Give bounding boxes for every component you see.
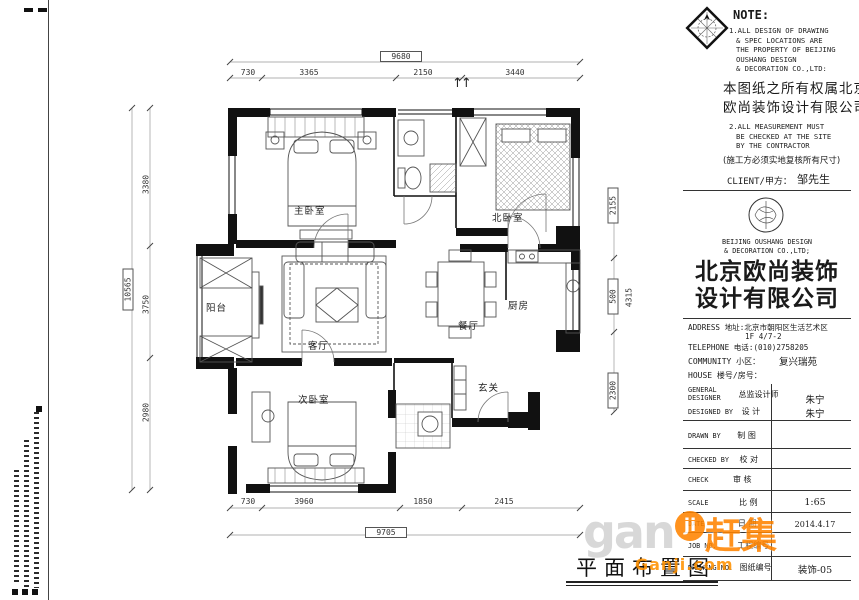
dim-bottom-total: 9705 bbox=[365, 527, 407, 538]
table-row-check: CHECK 审 核 bbox=[688, 474, 848, 485]
table-row-designed-by: DESIGNED BY 设 计 朱宁 bbox=[688, 406, 848, 417]
divider bbox=[683, 468, 851, 469]
floor-plan-sheet: 主卧室 北卧室 阳台 客厅 餐厅 厨房 玄关 次卧室 ↑↑ 9680 730 3… bbox=[0, 0, 859, 600]
dim-right-1: 2155 bbox=[608, 188, 619, 224]
dim-bottom-1: 730 bbox=[231, 497, 265, 506]
room-label-balcony: 阳台 bbox=[206, 300, 227, 314]
dim-left-3: 2980 bbox=[142, 396, 151, 430]
divider bbox=[683, 190, 851, 191]
company-name-en-2: & DECORATION CO.,LTD; bbox=[683, 247, 851, 256]
note-chinese-line-2: 欧尚装饰设计有限公司 bbox=[723, 99, 859, 118]
entry-direction-arrows: ↑↑ bbox=[452, 76, 470, 91]
note-heading: NOTE: bbox=[733, 8, 769, 22]
company-stamp-icon bbox=[747, 196, 785, 234]
divider bbox=[683, 490, 851, 491]
community-value: 复兴瑞苑 bbox=[779, 354, 817, 368]
table-row-date: DATE 日 期 2014.4.17 bbox=[688, 518, 848, 529]
divider bbox=[683, 532, 851, 533]
dim-top-3: 2150 bbox=[406, 68, 440, 77]
table-row-drawn-by: DRAWN BY 制 图 bbox=[688, 430, 848, 441]
dim-bottom-2: 3960 bbox=[287, 497, 321, 506]
divider bbox=[683, 420, 851, 421]
dim-top-4: 3440 bbox=[498, 68, 532, 77]
table-row-checked-by: CHECKED BY 校 对 bbox=[688, 454, 848, 465]
company-name-cn-1: 北京欧尚装饰 bbox=[683, 258, 851, 285]
company-name-en-1: BEIJING OUSHANG DESIGN bbox=[683, 238, 851, 247]
divider bbox=[683, 512, 851, 513]
client-value: 邹先生 bbox=[797, 171, 830, 187]
note-english-block-1: 1.ALL DESIGN OF DRAWING & SPEC LOCATIONS… bbox=[729, 26, 836, 74]
dim-top-1: 730 bbox=[231, 68, 265, 77]
note-chinese-line-1: 本图纸之所有权属北京 bbox=[723, 80, 859, 99]
room-label-dining-room: 餐厅 bbox=[458, 318, 479, 332]
table-row-drawing-no: DRAWING NO. 图纸编号 装饰-05 bbox=[688, 562, 848, 573]
company-name-cn-2: 设计有限公司 bbox=[683, 285, 851, 312]
house-label: HOUSE 楼号/房号： bbox=[688, 370, 762, 381]
client-label: CLIENT/甲方： bbox=[727, 174, 792, 187]
company-phone: TELEPHONE 电话:(010)2758205 bbox=[688, 342, 808, 353]
community-label: COMMUNITY 小区： bbox=[688, 356, 760, 367]
title-block: NOTE: 1.ALL DESIGN OF DRAWING & SPEC LOC… bbox=[683, 0, 851, 600]
dim-top-2: 3365 bbox=[292, 68, 326, 77]
divider bbox=[683, 556, 851, 557]
divider bbox=[683, 448, 851, 449]
table-row-scale: SCALE 比 例 1:65 bbox=[688, 497, 848, 508]
room-label-kitchen: 厨房 bbox=[508, 298, 529, 312]
partitions bbox=[394, 108, 506, 418]
note-chinese-small: (施工方必须实地复核所有尺寸) bbox=[723, 154, 840, 166]
table-row-job-no: JOB NO. 工程编号 bbox=[688, 540, 848, 551]
room-label-north-bedroom: 北卧室 bbox=[492, 210, 524, 224]
dim-left-1: 3380 bbox=[142, 168, 151, 202]
dim-bottom-3: 1850 bbox=[406, 497, 440, 506]
note-english-block-2: 2.ALL MEASUREMENT MUST BE CHECKED AT THE… bbox=[729, 122, 831, 151]
compass-diamond-icon bbox=[683, 4, 731, 52]
divider bbox=[683, 318, 851, 319]
room-label-master-bedroom: 主卧室 bbox=[294, 203, 326, 217]
room-label-foyer: 玄关 bbox=[478, 380, 499, 394]
dim-top-total: 9680 bbox=[380, 51, 422, 62]
dim-right-2: 500 bbox=[608, 279, 619, 315]
divider bbox=[683, 580, 851, 581]
company-address-line2: 1F 4/7-2 bbox=[745, 332, 782, 341]
dim-right-4: 2300 bbox=[608, 373, 619, 409]
room-label-second-bedroom: 次卧室 bbox=[298, 392, 330, 406]
dim-left-2: 3750 bbox=[142, 288, 151, 322]
dim-left-total: 10565 bbox=[123, 269, 134, 311]
dim-bottom-4: 2415 bbox=[487, 497, 521, 506]
room-label-living-room: 客厅 bbox=[308, 338, 329, 352]
dim-right-3: 4315 bbox=[625, 281, 634, 315]
table-row-general-designer: GENERAL DESIGNER 总监设计师 朱宁 bbox=[688, 386, 848, 402]
